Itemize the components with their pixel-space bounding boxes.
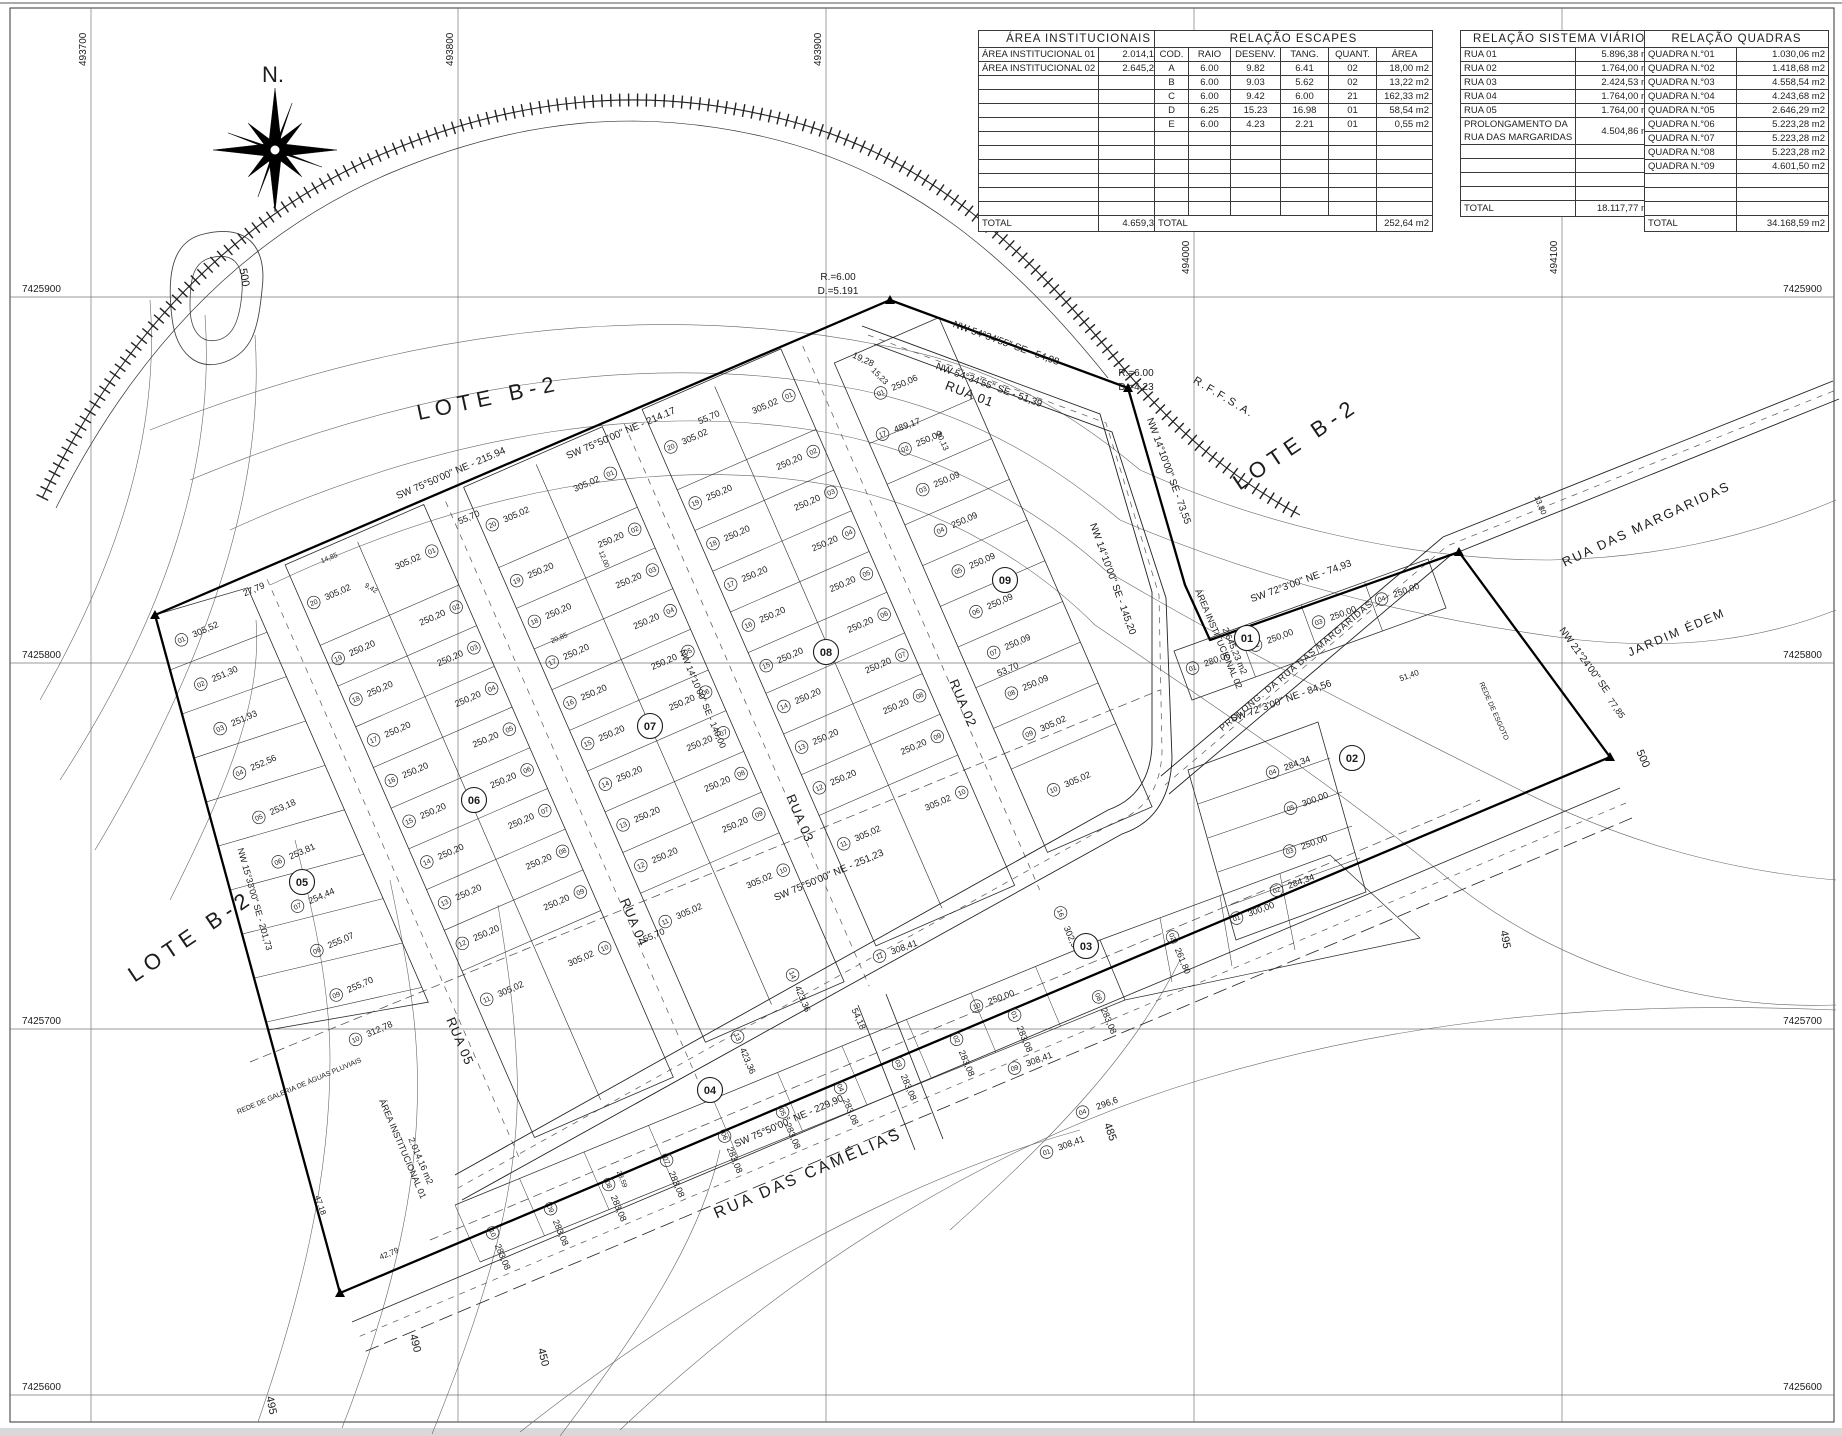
lot-area: 423,36 <box>738 1046 758 1075</box>
table-cell: C <box>1155 90 1189 104</box>
dimension-label: 27,79 <box>242 580 267 598</box>
table-cell: 16.98 <box>1281 104 1329 118</box>
lot-area: 250,20 <box>489 770 518 790</box>
table-cell-empty <box>1189 188 1231 202</box>
lot-number: 03 <box>1285 847 1295 856</box>
lot-area: 305,02 <box>745 870 774 890</box>
map-label: 495 <box>1497 929 1512 949</box>
lot-label: 11305,02 <box>478 978 525 1008</box>
lot-label: 03250,20 <box>435 640 482 670</box>
lot-area: 250,20 <box>775 452 804 472</box>
lot-label: 01305,02 <box>571 465 618 495</box>
lot-area: 250,20 <box>632 611 661 631</box>
lot-number: 01 <box>606 469 616 479</box>
lot-number: 18 <box>530 617 540 627</box>
lot-area: 305,02 <box>572 474 601 494</box>
lot-number: 11 <box>661 918 671 927</box>
lot-division-line <box>1328 848 1842 872</box>
lot-number: 14 <box>779 702 789 712</box>
table-cell-empty <box>1645 174 1737 188</box>
camelias-edge <box>352 788 1620 1322</box>
table-cell-empty <box>979 90 1099 104</box>
lot-number: 04 <box>835 1083 845 1093</box>
lot-label: 05253,18 <box>251 796 298 826</box>
table-row <box>1461 173 1658 187</box>
lot-number: 08 <box>1007 689 1017 699</box>
lot-number: 20 <box>488 521 498 531</box>
lot-number: 08 <box>558 847 568 857</box>
table-cell-empty <box>1189 132 1231 146</box>
lot-number: 01 <box>1042 1148 1052 1157</box>
lot-number: 08 <box>312 947 322 957</box>
quadra-number: 03 <box>1080 941 1092 953</box>
lot-area: 305,02 <box>502 504 531 524</box>
table-cell: 34.168,59 m2 <box>1737 216 1829 232</box>
lot-number: 20 <box>309 599 319 609</box>
bearing-label: NW 14°10'00" SE - 145,20 <box>1087 522 1138 637</box>
table-cell-empty <box>1377 146 1433 160</box>
table-row <box>979 146 1179 160</box>
lot-number: 07 <box>661 1156 671 1166</box>
lot-area: 250,20 <box>401 760 430 780</box>
lot-label: 10305,02 <box>923 784 970 814</box>
dimension-label: 30,13 <box>934 430 951 452</box>
lot-area: 261,80 <box>1173 946 1193 975</box>
map-label: REDE DE GALERIA DE ÁGUAS PLUVIAIS <box>235 1055 363 1116</box>
lot-number: 08 <box>915 692 925 702</box>
table-cell-empty <box>1231 174 1281 188</box>
grid-label-easting: 493700 <box>78 32 89 66</box>
lot-number: 05 <box>954 567 964 577</box>
lot-number: 11 <box>839 840 849 849</box>
map-label: R.=6.00 <box>1118 368 1154 379</box>
table-cell-empty <box>979 132 1099 146</box>
table-row <box>979 104 1179 118</box>
table-cell-empty <box>1155 202 1189 216</box>
lot-number: 17 <box>548 658 558 668</box>
map-label: REDE DE ESGOTO <box>1477 681 1509 742</box>
table-cell: PROLONGAMENTO DA <box>1461 118 1576 132</box>
dimension-label: 54,18 <box>850 1006 868 1031</box>
lot-division-line <box>206 765 325 802</box>
table-row <box>979 132 1179 146</box>
lot-number: 06 <box>274 858 284 868</box>
lot-number: 19 <box>512 577 522 587</box>
sheet-frame <box>0 3 1842 1436</box>
lot-number: 05 <box>505 725 515 735</box>
table-row: RELAÇÃO QUADRAS <box>1645 31 1829 48</box>
table-cell: 9.42 <box>1231 90 1281 104</box>
lot-number: 03 <box>469 644 479 654</box>
lot-number: 13 <box>440 899 450 909</box>
lot-number: 04 <box>1268 768 1278 777</box>
table-cell: TOTAL <box>1645 216 1737 232</box>
lot-area: 253,18 <box>268 797 297 817</box>
lot-number: 01 <box>1188 664 1198 673</box>
lot-label: 09283,08 <box>542 1200 572 1247</box>
table-cell: 5.223,28 m2 <box>1737 132 1829 146</box>
lot-number: 10 <box>600 944 610 954</box>
lot-area: 250,20 <box>347 638 376 658</box>
table-cell: QUADRA N.°05 <box>1645 104 1737 118</box>
lot-label: 08255,07 <box>309 929 356 959</box>
lot-label: 14250,20 <box>419 840 466 870</box>
table-cell: QUADRA N.°06 <box>1645 118 1737 132</box>
grid-label-northing: 7425800 <box>22 650 61 661</box>
table-relacao-quadras: RELAÇÃO QUADRASQUADRA N.°011.030,06 m2QU… <box>1644 30 1829 232</box>
lot-area: 250,20 <box>365 679 394 699</box>
grid-label-northing: 7425600 <box>1783 1382 1822 1393</box>
table-cell-empty <box>1281 202 1329 216</box>
lot-label: 01308,41 <box>1038 1133 1086 1161</box>
lot-area: 250,20 <box>524 852 553 872</box>
lot-number: 06 <box>971 608 981 618</box>
lot-number: 02 <box>951 1035 961 1045</box>
table-row: COD.RAIODESENV.TANG.QUANT.ÁREA <box>1155 48 1433 62</box>
table-cell-empty <box>1329 202 1377 216</box>
lot-label: 14423,36 <box>784 967 814 1014</box>
table-cell-empty <box>1645 188 1737 202</box>
lot-area: 250,20 <box>614 570 643 590</box>
lot-label: 11305,02 <box>657 900 704 930</box>
table-cell: A <box>1155 62 1189 76</box>
lot-area: 250,20 <box>579 682 608 702</box>
table-row: PROLONGAMENTO DA4.504,86 m2 <box>1461 118 1658 132</box>
grid-label-easting: 494000 <box>1181 240 1192 274</box>
lot-number: 04 <box>487 685 497 695</box>
table-cell: 6.25 <box>1189 104 1231 118</box>
lot-area: 250,20 <box>649 652 678 672</box>
lot-label: 05250,20 <box>827 565 874 595</box>
lot-label: 12250,20 <box>454 922 501 952</box>
street-centerline-rua02 <box>803 346 1040 890</box>
lot-number: 04 <box>666 607 676 617</box>
grid-label-northing: 7425800 <box>1783 650 1822 661</box>
table-cell: 5.223,28 m2 <box>1737 118 1829 132</box>
lot-area: 250,20 <box>650 845 679 865</box>
lot-area: 305,02 <box>923 793 952 813</box>
contour-line <box>230 421 1105 570</box>
table-cell: QUADRA N.°01 <box>1645 48 1737 62</box>
lot-number: 17 <box>726 580 736 590</box>
table-cell-empty <box>1737 202 1829 216</box>
lot-label: 02250,20 <box>417 599 464 629</box>
table-cell-empty <box>1737 174 1829 188</box>
lot-number: 12 <box>636 862 646 872</box>
table-cell-empty <box>1189 202 1231 216</box>
lot-number: 17 <box>369 736 379 746</box>
table-cell: 02 <box>1329 76 1377 90</box>
lot-label: 10305,02 <box>744 862 791 892</box>
lot-area: 250,20 <box>846 615 875 635</box>
lot-label: 08250,20 <box>881 687 928 717</box>
table-row: QUADRA N.°094.601,50 m2 <box>1645 160 1829 174</box>
table-cell: 9.03 <box>1231 76 1281 90</box>
table-cell-empty <box>1231 146 1281 160</box>
lot-label: 04250,09 <box>932 509 979 539</box>
lot-label: 04284,34 <box>1264 753 1312 781</box>
lot-number: 09 <box>754 810 764 820</box>
lot-area: 283,08 <box>493 1242 513 1271</box>
table-relacao-escapes: RELAÇÃO ESCAPESCOD.RAIODESENV.TANG.QUANT… <box>1154 30 1433 232</box>
lot-number: 05 <box>1286 804 1296 813</box>
table-cell: 5.223,28 m2 <box>1737 146 1829 160</box>
lot-area: 250,09 <box>1021 673 1050 693</box>
lot-number: 18 <box>708 540 718 550</box>
table-row: QUADRA N.°065.223,28 m2 <box>1645 118 1829 132</box>
lot-number: 02 <box>630 525 640 535</box>
table-row <box>979 118 1179 132</box>
contour-lines <box>40 231 1836 1436</box>
lot-label: 08250,20 <box>524 843 571 873</box>
table-cell: 21 <box>1329 90 1377 104</box>
table-row <box>1155 160 1433 174</box>
lot-label: 18250,20 <box>526 600 573 630</box>
lot-area: 250,09 <box>967 551 996 571</box>
lot-number: 02 <box>1272 886 1282 895</box>
lot-division-line <box>194 721 306 758</box>
table-cell-empty <box>1329 160 1377 174</box>
lot-number: 01 <box>427 547 437 557</box>
table-cell-empty <box>1281 188 1329 202</box>
lot-label: 10305,02 <box>1045 768 1092 798</box>
lot-label: 08250,09 <box>1003 671 1050 701</box>
table-cell: QUADRA N.°04 <box>1645 90 1737 104</box>
lot-area: 283,08 <box>899 1073 919 1102</box>
lot-label: 20305,02 <box>306 581 353 611</box>
table-area-institucionais: ÁREA INSTITUCIONAISÁREA INSTITUCIONAL 01… <box>978 30 1179 232</box>
lot-number: 10 <box>957 788 967 798</box>
lot-area: 250,20 <box>720 815 749 835</box>
table-cell: RUA 04 <box>1461 90 1576 104</box>
table-cell-empty <box>1155 160 1189 174</box>
map-label: 500 <box>1634 748 1652 770</box>
table-cell-empty <box>979 188 1099 202</box>
lot-area: 305,52 <box>191 619 220 639</box>
table-cell: 4.558,54 m2 <box>1737 76 1829 90</box>
lot-area: 305,02 <box>674 901 703 921</box>
lot-label: 17250,20 <box>365 718 412 748</box>
lot-area: 300,00 <box>1246 900 1275 919</box>
dimension-label: 51,40 <box>1398 668 1420 683</box>
table-cell-empty <box>1189 174 1231 188</box>
map-label: D.=4.23 <box>1118 382 1154 393</box>
grid-label-northing: 7425700 <box>1783 1016 1822 1027</box>
table-row: C6.009.426.0021162,33 m2 <box>1155 90 1433 104</box>
lot-number: 01 <box>876 389 886 399</box>
table-cell-empty <box>1231 160 1281 174</box>
dimension-label: 14,85 <box>320 552 339 565</box>
table-cell: 15.23 <box>1231 104 1281 118</box>
lot-area: 308,41 <box>1056 1134 1085 1153</box>
lot-area: 250,20 <box>383 719 412 739</box>
table-cell-empty <box>979 174 1099 188</box>
table-cell-empty <box>1281 132 1329 146</box>
grid-label-northing: 7425900 <box>22 284 61 295</box>
lot-number: 05 <box>777 1107 787 1117</box>
table-row <box>979 76 1179 90</box>
lot-label: 05250,20 <box>470 721 517 751</box>
lot-division-line <box>218 810 344 846</box>
table-cell: 6.00 <box>1189 76 1231 90</box>
lot-area: 250,20 <box>899 737 928 757</box>
lot-area: 250,20 <box>471 729 500 749</box>
table-cell-empty <box>1329 174 1377 188</box>
lot-label: 15250,20 <box>758 644 805 674</box>
lot-area: 305,02 <box>566 948 595 968</box>
lot-area: 305,02 <box>393 551 422 571</box>
lot-label: 16250,20 <box>562 681 609 711</box>
lot-area: 300,00 <box>1300 790 1329 809</box>
lot-number: 05 <box>862 570 872 580</box>
lot-area: 283,08 <box>957 1049 977 1078</box>
table-cell: 01 <box>1329 118 1377 132</box>
lot-number: 01 <box>784 392 794 402</box>
lot-label: 06250,09 <box>968 590 1015 620</box>
lot-number: 19 <box>334 654 344 664</box>
table-row: TOTAL18.117,77 m2 <box>1461 201 1658 217</box>
table-row: ÁREA INSTITUCIONAL 012.014,16 m2 <box>979 48 1179 62</box>
table-cell: ÁREA <box>1377 48 1433 62</box>
lot-label: 10305,02 <box>566 940 613 970</box>
lot-number: 10 <box>487 1228 497 1238</box>
lot-area: 250,20 <box>472 923 501 943</box>
table-row: RELAÇÃO SISTEMA VIÁRIO <box>1461 31 1658 48</box>
table-cell-empty <box>1645 202 1737 216</box>
table-cell: 6.00 <box>1189 62 1231 76</box>
lot-label: 13250,20 <box>436 881 483 911</box>
table-row: RUA 041.764,00 m2 <box>1461 90 1658 104</box>
lot-area: 250,20 <box>615 764 644 784</box>
table-cell-empty <box>1461 173 1576 187</box>
grid-label-northing: 7425700 <box>22 1016 61 1027</box>
dimension-label: 12,00 <box>597 550 610 569</box>
lot-label: 16250,20 <box>383 759 430 789</box>
table-row: A6.009.826.410218,00 m2 <box>1155 62 1433 76</box>
lot-area: 250,20 <box>758 605 787 625</box>
street-name-label: RUA 05 <box>443 1015 477 1068</box>
table-row <box>1155 202 1433 216</box>
table-cell: 6.00 <box>1281 90 1329 104</box>
lot-label: 06283,08 <box>716 1128 746 1175</box>
lot-area: 250,20 <box>828 574 857 594</box>
quadra-strip-outline <box>155 588 428 1030</box>
table-cell: RELAÇÃO SISTEMA VIÁRIO <box>1461 31 1658 48</box>
lot-label: 01305,52 <box>173 618 220 648</box>
lot-area: 255,70 <box>345 975 374 995</box>
lot-number: 03 <box>1314 618 1324 627</box>
lot-label: 09250,20 <box>541 884 588 914</box>
table-cell: QUADRA N.°03 <box>1645 76 1737 90</box>
bearing-label: SW 75°50'00" NE - 215.94 <box>395 445 508 502</box>
table-row: QUADRA N.°021.418,68 m2 <box>1645 62 1829 76</box>
lot-number: 03 <box>648 566 658 576</box>
lot-label: 07250,20 <box>506 802 553 832</box>
table-row <box>979 90 1179 104</box>
table-cell-empty <box>979 104 1099 118</box>
lot-number: 18 <box>351 695 361 705</box>
table-cell-empty <box>1155 146 1189 160</box>
lot-area: 250,20 <box>775 645 804 665</box>
lot-label: 17250,20 <box>544 640 591 670</box>
table-cell: QUANT. <box>1329 48 1377 62</box>
lot-division-line <box>1328 772 1842 804</box>
table-row <box>1155 188 1433 202</box>
table-cell: ÁREA INSTITUCIONAL 02 <box>979 62 1099 76</box>
table-row: B6.009.035.620213,22 m2 <box>1155 76 1433 90</box>
lot-label: 13250,20 <box>615 803 662 833</box>
table-cell: TOTAL <box>979 216 1099 232</box>
lot-area: 250,20 <box>526 560 555 580</box>
boundary-vertex-marker <box>885 295 895 304</box>
table-cell-empty <box>979 76 1099 90</box>
table-relacao-sistema-viario: RELAÇÃO SISTEMA VIÁRIORUA 015.896,38 m2R… <box>1460 30 1658 217</box>
lot-label: 01305,02 <box>750 387 797 417</box>
lot-area: 250,00 <box>1265 627 1294 646</box>
sheet-edge-strip <box>0 1428 1842 1436</box>
pond-outline <box>170 231 263 364</box>
table-cell: B <box>1155 76 1189 90</box>
lot-number: 04 <box>1377 595 1387 604</box>
lot-area: 250,20 <box>685 733 714 753</box>
lot-number: 02 <box>809 448 819 458</box>
table-cell-empty <box>1377 202 1433 216</box>
contour-line <box>432 905 517 1434</box>
lot-area: 250,20 <box>810 533 839 553</box>
lot-number: 01 <box>1232 914 1242 923</box>
lot-number: 13 <box>732 1032 742 1042</box>
dimension-label: 77,85 <box>1606 696 1627 720</box>
lot-label: 16250,20 <box>740 603 787 633</box>
lot-label: 09250,20 <box>720 806 767 836</box>
table-row: TOTAL252,64 m2 <box>1155 216 1433 232</box>
lot-label: 18250,20 <box>705 522 752 552</box>
table-cell: COD. <box>1155 48 1189 62</box>
table-cell-empty <box>1155 174 1189 188</box>
lot-label: 09305,02 <box>1021 712 1068 742</box>
lot-label: 15250,20 <box>579 722 626 752</box>
lot-label: 17250,20 <box>722 563 769 593</box>
table-cell: 2.21 <box>1281 118 1329 132</box>
table-cell: 5.62 <box>1281 76 1329 90</box>
contour-line <box>1095 625 1836 1005</box>
lot-number: 09 <box>576 888 586 898</box>
table-cell-empty <box>1461 187 1576 201</box>
bearing-label: NW 21°24'00" SE <box>1557 626 1612 696</box>
table-cell-empty <box>1189 146 1231 160</box>
lot-number: 06 <box>522 766 532 776</box>
lot-label: 03251,93 <box>212 707 259 737</box>
table-cell: TANG. <box>1281 48 1329 62</box>
lot-division-line <box>1011 724 1116 770</box>
lot-label: 10283,08 <box>484 1225 514 1272</box>
lot-division-line <box>1036 967 1061 1027</box>
lot-number: 09 <box>332 991 342 1001</box>
lot-area: 308,41 <box>1024 1050 1053 1069</box>
table-row: QUADRA N.°075.223,28 m2 <box>1645 132 1829 146</box>
table-cell: E <box>1155 118 1189 132</box>
lot-label: 03250,20 <box>613 562 660 592</box>
lot-number: 06 <box>880 610 890 620</box>
lot-number: 01 <box>1009 1010 1019 1020</box>
table-cell: 58,54 m2 <box>1377 104 1433 118</box>
lot-number: 02 <box>452 603 462 613</box>
table-cell: 162,33 m2 <box>1377 90 1433 104</box>
table-row <box>1461 187 1658 201</box>
lot-label: 05300,00 <box>1282 789 1330 817</box>
table-cell: 4.601,50 m2 <box>1737 160 1829 174</box>
lot-label: 10312,78 <box>347 1018 394 1048</box>
